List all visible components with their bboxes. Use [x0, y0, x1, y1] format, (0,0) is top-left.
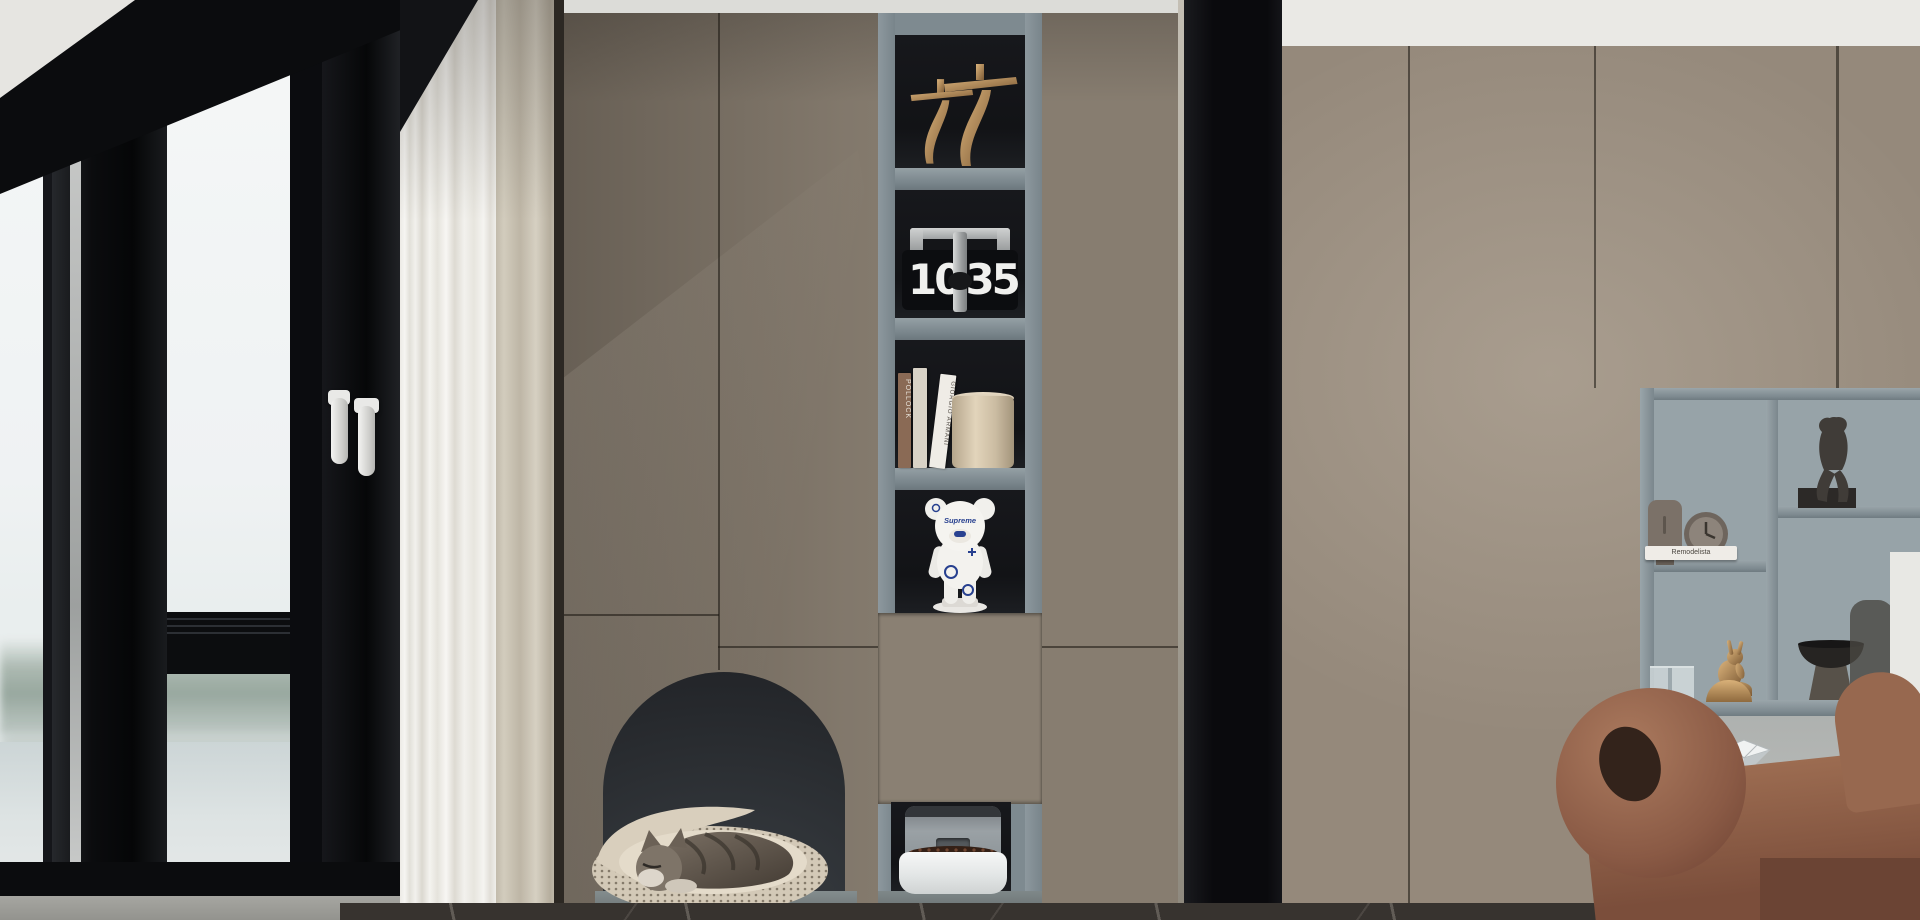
cabinet-side-trim: [554, 0, 564, 920]
bear-figurine: Supreme: [905, 492, 1015, 614]
wardrobe-seam: [1408, 46, 1410, 904]
shelf-book: Remodelista: [1645, 546, 1737, 560]
shelving-top-board: [1640, 388, 1920, 400]
window-mullion-right: [290, 0, 322, 866]
window-handle-upper: [331, 398, 348, 464]
wardrobe-seam: [1594, 46, 1596, 388]
pet-feeder-top: [905, 806, 1001, 817]
window-handle-lower: [358, 406, 375, 476]
gold-sculptures: [900, 42, 1020, 168]
shelf-board: [895, 318, 1025, 340]
closed-cabinet-door: [878, 613, 1042, 804]
book-spine-pollock: POLLOCK: [898, 373, 911, 468]
book-spine-cream: [913, 368, 927, 468]
seated-figure-sculpture: [1790, 412, 1875, 512]
living-room-scene: 10 35 POLLOCK GIORGIO ARMANI Supreme: [0, 0, 1920, 920]
storage-cylinder: [952, 396, 1014, 468]
face-vase-nose: [1663, 516, 1666, 534]
book-title: POLLOCK: [904, 379, 911, 468]
ceiling-right: [1282, 0, 1920, 48]
cabinet-seam: [718, 646, 880, 648]
cat-muzzle: [638, 869, 664, 887]
bear-head: [935, 501, 985, 551]
ceiling-strip-center: [564, 0, 1184, 13]
cat-bed-with-cat: [585, 790, 835, 915]
window-bottom-frame: [0, 862, 403, 898]
shelving-divider: [1766, 400, 1778, 702]
structural-black-column: [1184, 0, 1282, 920]
cabinet-seam: [1042, 646, 1180, 648]
cabinet-seam: [718, 13, 720, 670]
wardrobe-seam: [1836, 46, 1839, 388]
shelf-board: [895, 168, 1025, 190]
bear-logo-text: Supreme: [944, 516, 976, 525]
bear-nose: [954, 531, 966, 537]
flip-clock-gear: [948, 272, 972, 290]
cabinet-seam: [564, 614, 719, 616]
window-transom-grooves: [167, 618, 290, 636]
cat-paw: [665, 879, 697, 893]
sofa-seat-corner: [1760, 858, 1920, 920]
shelf-board: [895, 468, 1025, 490]
clock-minutes: 35: [965, 250, 1017, 310]
gold-sculpture-tall: [944, 64, 1018, 166]
pet-feeder-bowl: [899, 852, 1007, 894]
shelf-book-title: Remodelista: [1672, 549, 1711, 556]
